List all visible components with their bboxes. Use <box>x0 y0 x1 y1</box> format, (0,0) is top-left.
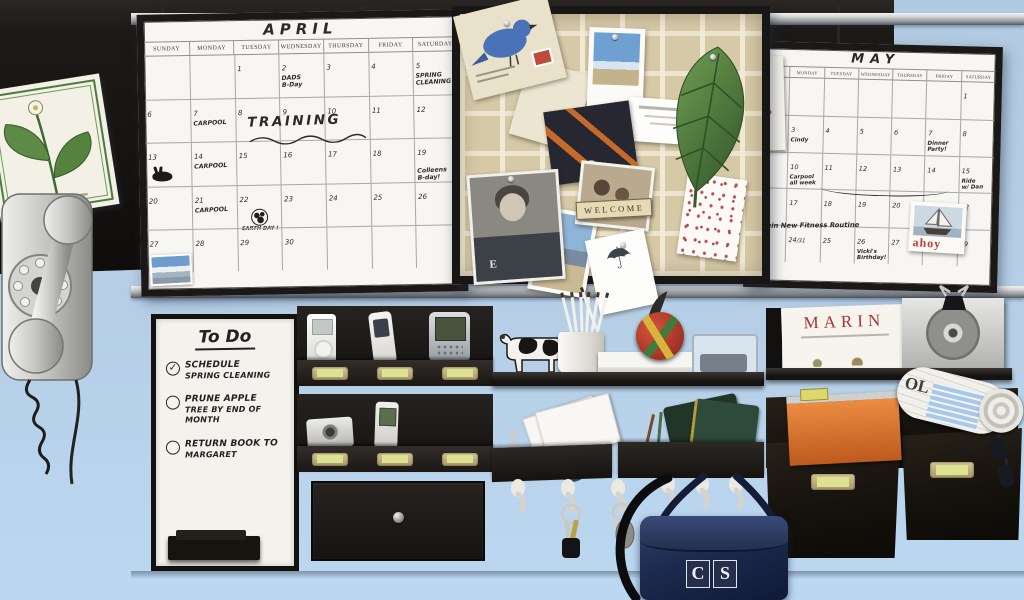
date-number: 16 <box>283 152 292 160</box>
date-number: 20 <box>892 202 900 210</box>
digital-camera <box>306 416 354 449</box>
day-header: WEDNESDAY <box>858 69 893 80</box>
calendar-cell <box>857 80 892 118</box>
date-number: 27 <box>150 240 159 248</box>
todo-title: To Do <box>195 326 255 350</box>
date-number: 7 <box>928 129 932 137</box>
calendar-grid: 12DADSB-Day345SPRINGCLEANING67CARPOOL891… <box>144 51 461 272</box>
calendar-cell: 7DinnerParty! <box>925 118 960 156</box>
calendar-cell: 15Ridew/ Dan <box>958 156 993 194</box>
date-number: 26 <box>857 238 865 246</box>
label-holder <box>377 367 413 380</box>
book-cover-art <box>788 347 903 368</box>
date-number: 25 <box>373 193 382 201</box>
training-annotation: TRAINING <box>247 104 459 149</box>
todo-item: RETURN BOOK TOMARGARET <box>166 438 288 461</box>
wavy-underline <box>248 132 368 146</box>
bw-portrait-photo: E <box>466 169 565 285</box>
calendar-cell <box>326 226 371 270</box>
wall-organization-scene: APRIL SUNDAYMONDAYTUESDAYWEDNESDAYTHURSD… <box>0 0 1024 600</box>
calendar-entry: CARPOOL <box>194 163 235 172</box>
calendar-cell: 10Carpoolall week <box>787 152 822 190</box>
mobile-phone <box>374 402 399 449</box>
calendar-cell: 11 <box>821 152 856 190</box>
date-number: 18 <box>824 200 832 208</box>
date-number: 11 <box>824 163 832 171</box>
vintage-wall-phone <box>0 186 108 486</box>
date-number: 4 <box>825 127 829 135</box>
date-number: 25 <box>823 237 831 245</box>
label-holder <box>442 367 478 380</box>
monogram-letter: C <box>686 560 710 588</box>
date-number: 8 <box>962 130 966 138</box>
calendar-entry: SPRINGCLEANING <box>416 72 457 88</box>
label-holder <box>377 453 413 466</box>
date-number: 29 <box>240 239 249 247</box>
calendar-entry: DinnerParty! <box>928 140 958 153</box>
calendar-cell <box>926 81 961 119</box>
calendar-entry: DADSB-Day <box>282 74 323 90</box>
calendar-cell: 3 <box>323 53 368 97</box>
calendar-cell: 28 <box>192 228 237 272</box>
day-header: TUESDAY <box>824 68 859 79</box>
fitness-annotation: Begin New Fitness Routine <box>757 221 860 230</box>
date-number: 24 <box>329 194 338 202</box>
calendar-cell: 24 <box>326 182 371 226</box>
day-header: MONDAY <box>189 41 234 55</box>
calendar-entry: Carpoolall week <box>790 174 820 187</box>
date-number: 21 <box>195 196 204 204</box>
april-calendar-board: APRIL SUNDAYMONDAYTUESDAYWEDNESDAYTHURSD… <box>137 9 469 297</box>
drawer-knob <box>393 512 404 523</box>
calendar-cell: 3Cindy <box>788 115 823 153</box>
label-holder <box>930 462 974 478</box>
calendar-cell: 25 <box>819 226 854 264</box>
todo-text: SCHEDULESPRING CLEANING <box>185 360 271 382</box>
calendar-entry: CARPOOL <box>195 206 236 215</box>
book-subtitle-line <box>801 333 889 338</box>
label-holder <box>312 367 348 380</box>
date-number: 8 <box>238 109 243 117</box>
calendar-cell: 6 <box>890 117 925 155</box>
date-number: 13 <box>893 165 901 173</box>
calendar-cell: 12 <box>855 153 890 191</box>
date-number: 5 <box>860 127 864 135</box>
todo-item: ✓SCHEDULESPRING CLEANING <box>166 359 288 382</box>
slot-front-rail <box>297 360 493 386</box>
calendar-cell: 25 <box>370 182 415 226</box>
checked-circle: ✓ <box>166 361 180 375</box>
polaroid-photo <box>593 32 641 86</box>
calendar-cell <box>823 79 858 117</box>
todo-text: PRUNE APPLETREE BY END OF MONTH <box>185 394 288 426</box>
monogram-bag: CS <box>640 516 788 600</box>
date-number: 1 <box>237 65 242 73</box>
day-header: SUNDAY <box>144 42 189 56</box>
shelf-edge <box>492 372 764 386</box>
calendar-cell: 13 <box>890 154 925 192</box>
rabbit-doodle <box>152 172 172 182</box>
calendar-cell: 5 <box>856 116 891 154</box>
disc-photo <box>926 306 980 360</box>
calendar-cell: 14CARPOOL <box>191 142 236 186</box>
calendar-cell: 13 <box>146 142 192 186</box>
calendar-cell: 29 <box>237 227 282 271</box>
calendar-cell: 27 <box>147 229 193 273</box>
secondary-date-number: /31 <box>797 238 806 244</box>
calendar-cell: 1 <box>960 82 995 120</box>
date-number: 23 <box>284 195 293 203</box>
date-number: 13 <box>148 154 157 162</box>
fabric-pinboard: E WELCOME ☂ <box>452 6 770 284</box>
storage-drawer <box>311 481 485 561</box>
clipped-photo <box>902 298 1004 368</box>
date-number: 6 <box>894 128 898 136</box>
date-number: 7 <box>193 110 198 118</box>
flip-phone <box>368 311 397 365</box>
charging-station-top-row <box>297 306 493 386</box>
mp3-player <box>307 314 336 364</box>
newspaper-ad-block <box>925 382 985 431</box>
calendar-cell: 7CARPOOL <box>190 98 235 142</box>
letter-bin-front <box>492 444 612 482</box>
bag-monogram: CS <box>686 560 737 588</box>
date-number: 2 <box>282 64 287 72</box>
day-header: FRIDAY <box>927 70 962 81</box>
earth-doodle <box>251 208 268 225</box>
date-number: 18 <box>373 150 382 158</box>
label-holder <box>811 474 855 490</box>
date-number: 4 <box>371 63 376 71</box>
calendar-cell: 30 <box>282 226 327 270</box>
date-number: 1 <box>963 92 967 100</box>
calendar-cell: 26Vicki'sBirthday! <box>853 227 888 265</box>
date-number: 17 <box>328 151 337 159</box>
date-number: 6 <box>147 111 152 119</box>
calendar-cell: 23 <box>281 183 326 227</box>
date-number: 15 <box>962 167 970 175</box>
date-number: 17 <box>789 199 797 207</box>
day-header: SATURDAY <box>412 37 457 51</box>
date-number: 19 <box>417 149 426 157</box>
date-number: 14 <box>194 153 203 161</box>
calendar-cell: 14 <box>924 155 959 193</box>
charging-station-bottom-row <box>297 394 493 472</box>
todo-item: PRUNE APPLETREE BY END OF MONTH <box>166 394 288 427</box>
calendar-cell <box>789 78 824 116</box>
day-header: SATURDAY <box>961 71 996 82</box>
calendar-cell: 1 <box>234 54 279 98</box>
day-header: TUESDAY <box>233 40 278 54</box>
day-header: WEDNESDAY <box>278 40 323 54</box>
calendar-cell: 17 <box>786 188 821 226</box>
calendar-entry: Ridew/ Dan <box>961 178 991 191</box>
date-number: 24 <box>788 236 796 244</box>
date-number: 12 <box>859 164 867 172</box>
day-header: THURSDAY <box>323 39 368 53</box>
todo-list: ✓SCHEDULESPRING CLEANINGPRUNE APPLETREE … <box>156 360 294 460</box>
todo-whiteboard: To Do ✓SCHEDULESPRING CLEANINGPRUNE APPL… <box>151 314 299 571</box>
date-number: 3 <box>791 126 795 134</box>
calendar-cell: 21CARPOOL <box>192 185 237 229</box>
calendar-cell: 22EARTH DAY ! <box>236 184 281 228</box>
day-header: THURSDAY <box>892 69 927 80</box>
calendar-cell <box>371 225 416 269</box>
calendar-cell: 24/31 <box>785 225 820 263</box>
bag-handles <box>636 470 796 522</box>
calendar-cell <box>189 55 234 99</box>
calendar-cell: 4 <box>822 116 857 154</box>
calendar-cell <box>891 80 926 118</box>
calendar-cell: 6 <box>145 99 191 143</box>
label-holder <box>442 453 478 466</box>
date-number: 19 <box>858 201 866 209</box>
sailboat-postcard: ahoy <box>908 201 967 254</box>
may-calendar-board: MAY SUNDAYMONDAYTUESDAYWEDNESDAYTHURSDAY… <box>743 41 1003 293</box>
sailboat-art <box>913 205 963 238</box>
book-title: MARIN <box>781 310 908 334</box>
marin-book: MARIN <box>781 304 909 372</box>
todo-circle <box>166 396 180 410</box>
unit-shadow <box>131 571 1024 579</box>
calendar-cell <box>144 56 190 100</box>
date-number: 27 <box>891 239 899 247</box>
woven-ball <box>636 312 684 360</box>
newspaper-masthead: OL <box>903 373 932 398</box>
photo-doodle <box>149 253 193 286</box>
folder-tab-label <box>800 388 829 401</box>
binder-clip <box>936 284 972 310</box>
date-number: 20 <box>149 197 158 205</box>
date-number: 30 <box>285 238 294 246</box>
marker-tray <box>168 536 260 560</box>
todo-circle <box>166 440 180 454</box>
shirt-letter: E <box>489 258 497 270</box>
date-number: 26 <box>418 192 427 200</box>
date-number: 22 <box>239 196 248 204</box>
date-number: 14 <box>927 166 935 174</box>
calendar-entry: Cindy <box>791 137 821 144</box>
monogram-letter: S <box>713 560 737 588</box>
label-holder <box>312 453 348 466</box>
calendar-cell: 8 <box>959 119 994 157</box>
smartphone <box>429 312 470 362</box>
stacked-books <box>766 308 782 368</box>
calendar-cell: 2DADSB-Day <box>279 54 324 98</box>
postcard-text: ahoy <box>912 235 942 252</box>
bag-flap <box>640 516 788 552</box>
day-header: FRIDAY <box>368 38 413 52</box>
day-header: MONDAY <box>789 67 824 78</box>
slot-front-rail <box>297 446 493 472</box>
calendar-entry: CARPOOL <box>193 120 234 129</box>
date-number: 5 <box>416 62 421 70</box>
orange-folder <box>786 391 901 466</box>
calendar-cell: 20 <box>147 186 193 230</box>
todo-text: RETURN BOOK TOMARGARET <box>185 438 278 460</box>
date-number: 28 <box>195 239 204 247</box>
date-number: 10 <box>790 163 798 171</box>
date-number: 3 <box>326 63 331 71</box>
calendar-cell: 4 <box>368 52 413 96</box>
calendar-entry: Vicki'sBirthday! <box>857 249 887 262</box>
date-number: 15 <box>239 152 248 160</box>
